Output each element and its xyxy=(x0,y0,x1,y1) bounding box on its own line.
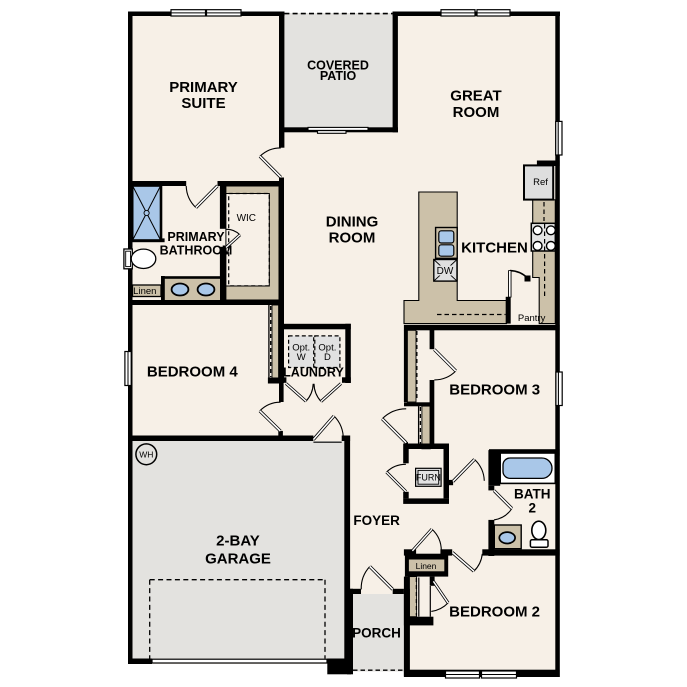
svg-text:Linen: Linen xyxy=(133,286,156,297)
svg-text:ROOM: ROOM xyxy=(329,229,376,246)
svg-text:2: 2 xyxy=(529,500,537,515)
svg-text:DINING: DINING xyxy=(326,213,379,230)
svg-text:PRIMARY: PRIMARY xyxy=(169,79,238,96)
svg-text:DW: DW xyxy=(437,266,454,277)
svg-text:PATIO: PATIO xyxy=(320,69,357,83)
svg-text:Ref: Ref xyxy=(533,177,548,188)
svg-text:Linen: Linen xyxy=(416,561,437,571)
svg-text:BEDROOM 4: BEDROOM 4 xyxy=(147,364,239,381)
svg-text:LAUNDRY: LAUNDRY xyxy=(283,366,344,380)
svg-text:2-BAY: 2-BAY xyxy=(216,532,260,549)
svg-text:FOYER: FOYER xyxy=(353,513,400,528)
svg-text:GREAT: GREAT xyxy=(450,87,501,104)
svg-text:D: D xyxy=(324,352,331,363)
svg-text:SUITE: SUITE xyxy=(181,95,225,112)
svg-text:WH: WH xyxy=(139,449,153,459)
svg-text:BEDROOM 3: BEDROOM 3 xyxy=(449,381,540,398)
svg-text:KITCHEN: KITCHEN xyxy=(461,239,528,256)
svg-text:ROOM: ROOM xyxy=(453,104,500,121)
svg-text:W: W xyxy=(297,352,306,363)
svg-text:BEDROOM 2: BEDROOM 2 xyxy=(449,603,540,620)
svg-text:BATHROOM: BATHROOM xyxy=(160,243,233,257)
svg-text:GARAGE: GARAGE xyxy=(205,550,271,567)
svg-text:Pantry: Pantry xyxy=(518,313,546,324)
svg-text:FURN: FURN xyxy=(416,473,441,483)
svg-text:WIC: WIC xyxy=(237,213,256,224)
svg-text:PRIMARY: PRIMARY xyxy=(167,230,225,244)
svg-text:PORCH: PORCH xyxy=(352,625,401,640)
